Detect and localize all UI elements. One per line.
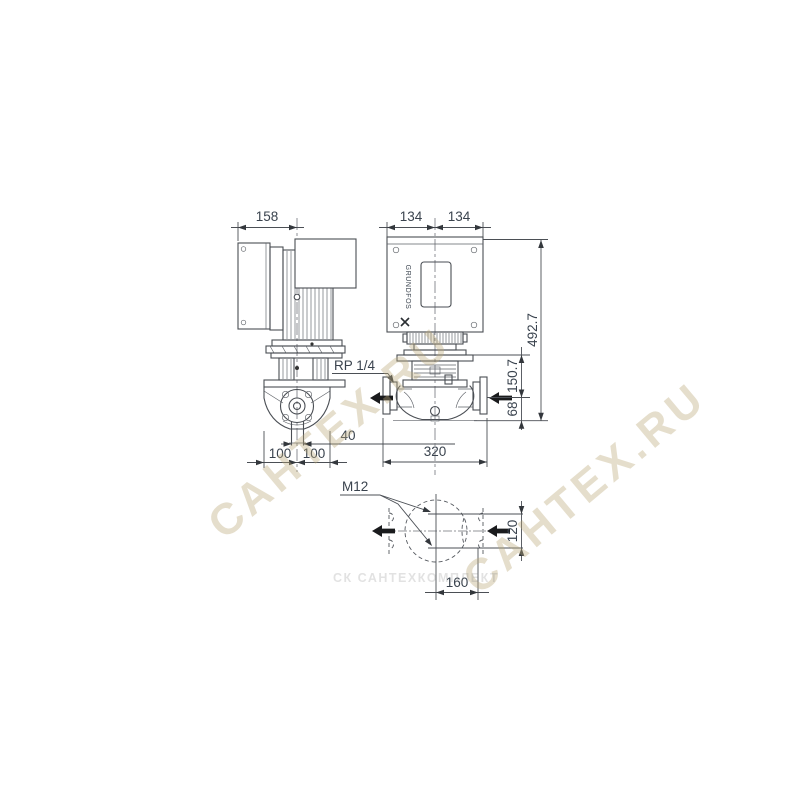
- pump-dimensional-drawing: 158: [0, 0, 800, 800]
- dim-158-label: 158: [256, 209, 279, 224]
- nameplate: [421, 262, 451, 307]
- pump-volute-side: [264, 380, 345, 445]
- dim-158: 158: [231, 209, 304, 241]
- bolt-callout: M12: [340, 479, 434, 548]
- rp14-label: RP 1/4: [334, 358, 376, 373]
- dim-100-right-label: 100: [303, 446, 326, 461]
- front-view: 134 134 GRUNDFOS: [370, 209, 548, 475]
- dim-320-label: 320: [424, 444, 447, 459]
- dim-120-label: 120: [505, 520, 520, 543]
- dim-40-label: 40: [340, 428, 355, 443]
- m12-label: M12: [342, 479, 368, 494]
- dim-heights: 150.7 68 492.7: [473, 240, 548, 431]
- dim-134-right-label: 134: [448, 209, 471, 224]
- dim-120: 120: [505, 501, 524, 561]
- side-view: 158: [231, 209, 455, 472]
- grundfos-logo-icon: [401, 318, 409, 326]
- dim-68-label: 68: [505, 401, 520, 416]
- dim-160: 160: [425, 548, 489, 600]
- dim-134-left-label: 134: [400, 209, 423, 224]
- dim-492-7-label: 492.7: [525, 313, 540, 347]
- dim-150-7-label: 150.7: [505, 359, 520, 393]
- flow-arrow-left-bottom: [372, 525, 395, 537]
- brand-label: GRUNDFOS: [404, 265, 411, 310]
- dim-160-label: 160: [446, 575, 469, 590]
- pump-dimensional-drawing-page: 158: [0, 0, 800, 800]
- dim-100-left-label: 100: [269, 446, 292, 461]
- bottom-view: M12 120 160: [340, 479, 524, 600]
- pump-casing-front: [370, 377, 512, 421]
